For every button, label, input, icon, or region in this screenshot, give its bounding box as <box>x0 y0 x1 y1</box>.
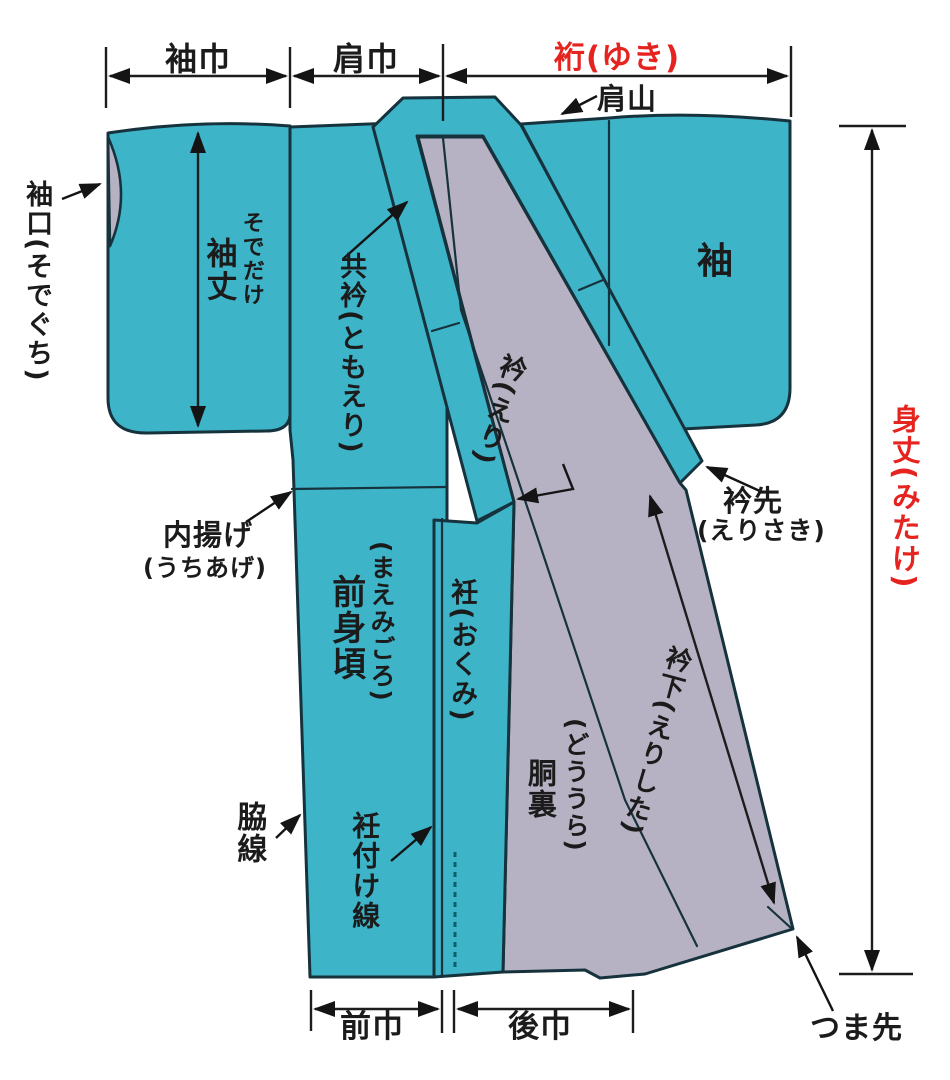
label-mae-migoro: 前身頃 <box>327 574 364 682</box>
leader-sode-guchi <box>62 184 100 199</box>
label-okumi: 衽(おくみ) <box>447 578 476 723</box>
label-sode-guchi: 袖口(そでぐち) <box>22 180 51 383</box>
label-dou-ura: 胴裏 <box>524 758 555 820</box>
label-sode-take: 袖丈 <box>201 237 234 303</box>
label-sode-haba: 袖巾 <box>138 42 258 77</box>
label-mae-migoro-kana: (まえみごろ) <box>368 541 395 703</box>
label-tsuma-saki: つま先 <box>810 1013 903 1045</box>
label-waki-sen: 脇線 <box>232 801 264 865</box>
label-sode-take-kana: そでだけ <box>239 211 263 307</box>
label-mae-haba: 前巾 <box>340 1011 404 1044</box>
label-uchiage-kana: (うちあげ) <box>143 556 267 582</box>
kimono-diagram: 袖巾 肩巾 裄(ゆき) 肩山 袖 袖口(そでぐち) そでだけ 袖丈 共衿(ともえ… <box>0 0 950 1080</box>
leader-waki-sen <box>276 815 300 838</box>
label-kata-yama: 肩山 <box>597 84 657 115</box>
leader-kata-yama <box>562 96 597 114</box>
label-eri-saki-kana: (えりさき) <box>697 517 826 544</box>
okumi-panel <box>434 502 514 977</box>
label-dou-ura-kana: (どううら) <box>562 718 589 853</box>
label-ushiro-haba: 後巾 <box>508 1011 572 1044</box>
label-yuki: 裄(ゆき) <box>517 42 717 75</box>
label-okumi-tsuke-sen: 衽付け線 <box>349 811 379 931</box>
leader-tsuma-saki <box>797 937 833 1011</box>
label-sode: 袖 <box>697 243 734 282</box>
label-eri-saki: 衿先 <box>723 486 783 517</box>
label-mitake: 身丈(みたけ) <box>888 404 919 590</box>
label-kata-haba: 肩巾 <box>306 42 426 77</box>
label-tomo-eri: 共衿(ともえり) <box>336 252 365 455</box>
label-uchiage: 内揚げ <box>163 520 253 551</box>
